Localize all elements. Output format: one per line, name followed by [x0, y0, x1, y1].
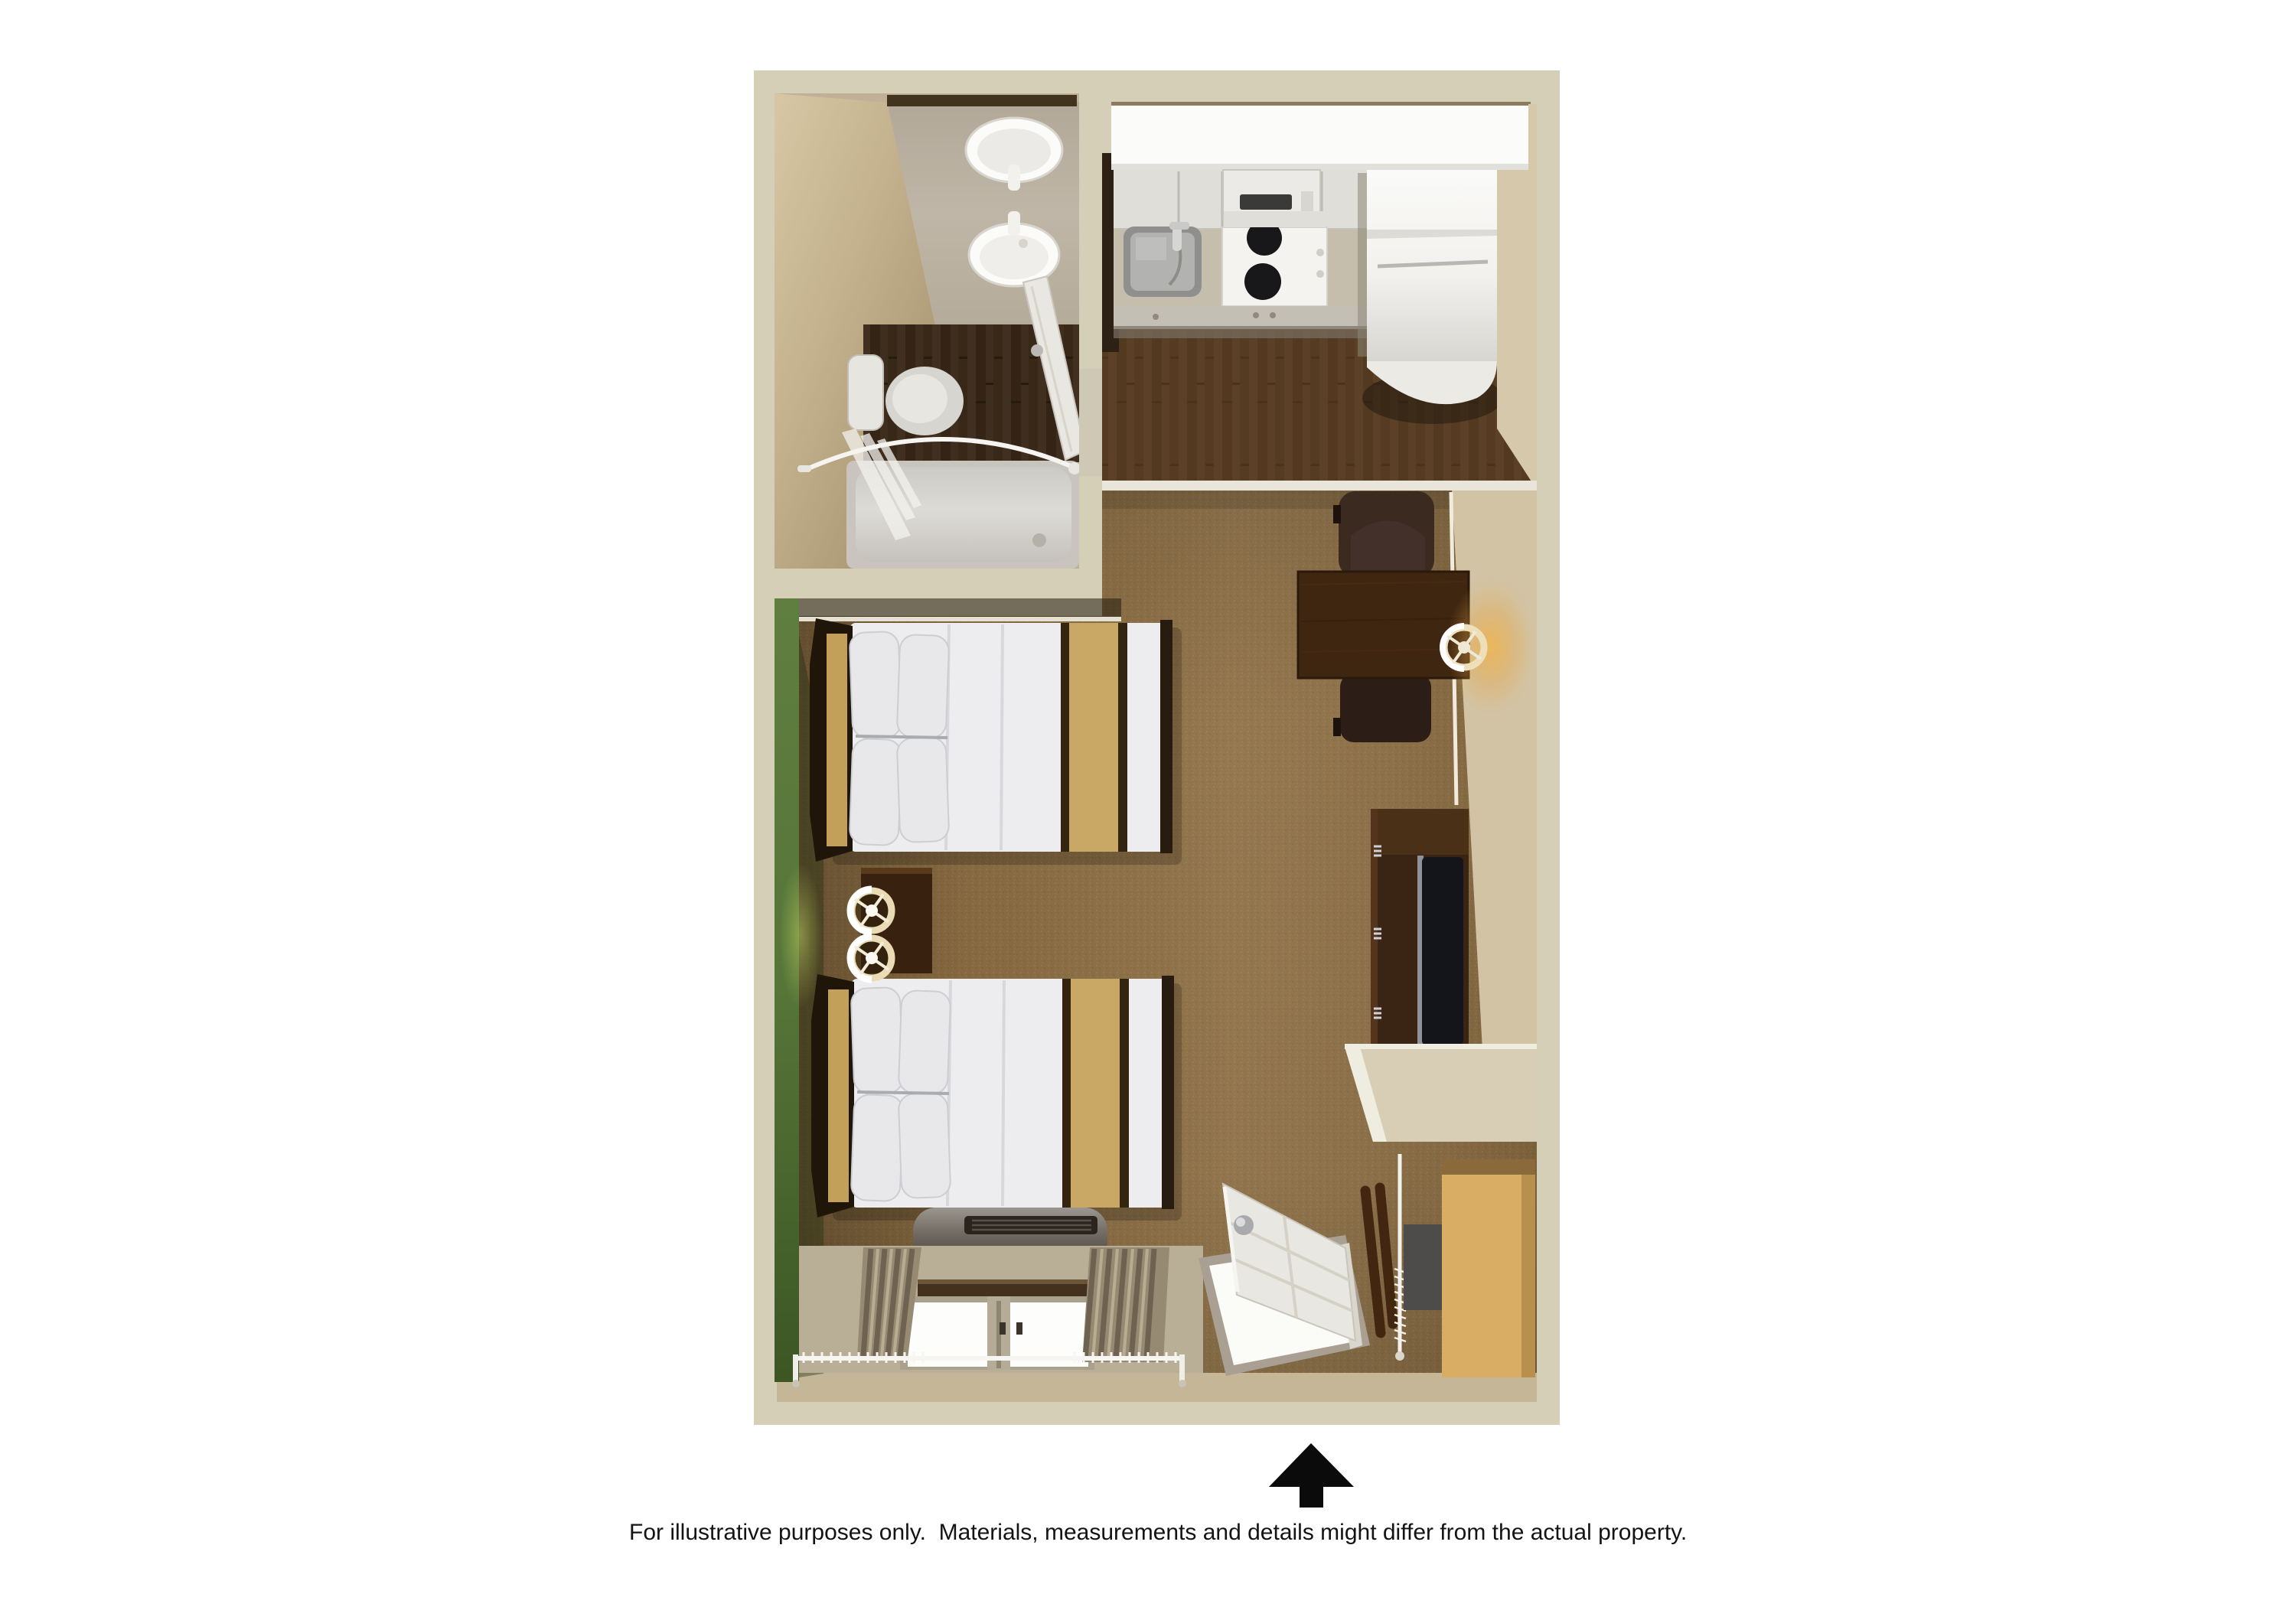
svg-text:For illustrative purposes only: For illustrative purposes only. Material…: [629, 1520, 1687, 1545]
